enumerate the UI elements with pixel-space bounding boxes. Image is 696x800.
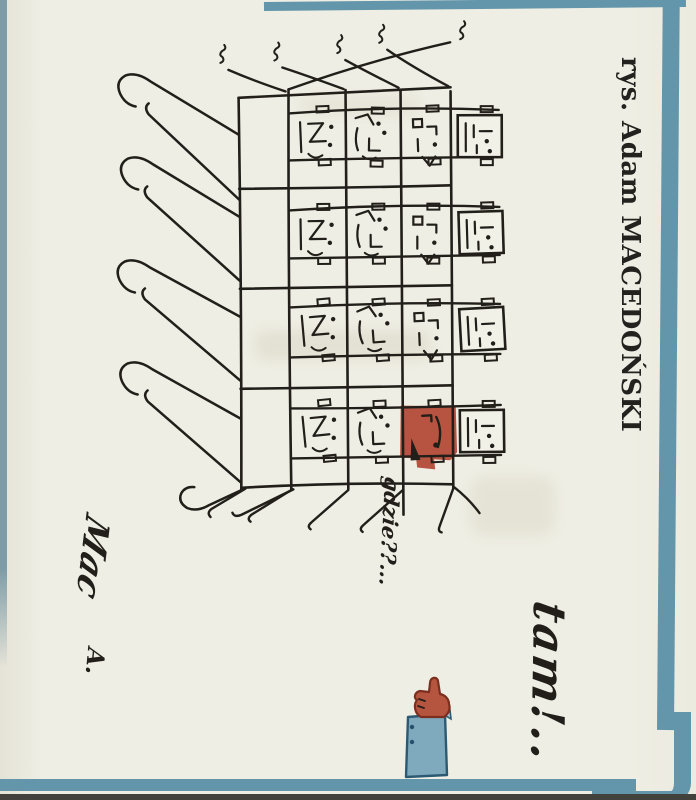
antenna-hook — [120, 362, 241, 484]
pointing-hand — [415, 678, 450, 717]
window-face — [459, 298, 506, 362]
pointing-figure — [406, 678, 451, 777]
antenna-hook — [180, 486, 293, 516]
signature-initial: A. — [80, 646, 111, 675]
page-gutter-stripe — [0, 0, 7, 668]
roof-lines — [220, 21, 466, 92]
window-face — [458, 202, 504, 263]
window-face — [300, 204, 334, 265]
window-face — [299, 106, 335, 166]
window-face — [357, 298, 393, 362]
frame-bottom-border — [0, 779, 636, 791]
scanned-cartoon-page: rys. Adam MACEDOŃSKI gdzie??... tam!.. M… — [0, 0, 696, 800]
window-face — [413, 204, 439, 264]
scan-edge — [0, 794, 696, 800]
window-face — [356, 204, 388, 264]
building — [116, 21, 507, 535]
window-face — [414, 299, 443, 362]
window-face — [458, 106, 502, 165]
window-face — [357, 400, 391, 463]
artist-credit: rys. Adam MACEDOŃSKI — [615, 57, 645, 432]
answer-text: tam!.. — [520, 598, 576, 767]
antenna-hook — [118, 74, 239, 201]
sleeve — [406, 714, 447, 777]
cartoon-drawing — [0, 0, 696, 800]
